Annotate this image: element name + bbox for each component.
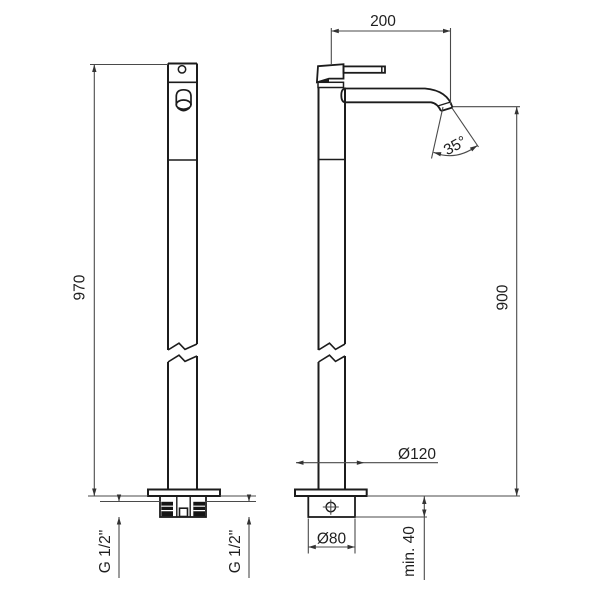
dim-970-label: 970 bbox=[72, 274, 89, 300]
dim-35deg: 35° bbox=[432, 107, 479, 159]
front-base-plate bbox=[295, 490, 367, 497]
dim-970: 970 bbox=[72, 65, 169, 497]
dim-g12-right-label: G 1/2" bbox=[227, 530, 244, 573]
dim-200-label: 200 bbox=[370, 13, 396, 30]
side-base-plate bbox=[148, 490, 220, 497]
cartridge-cap bbox=[317, 64, 344, 82]
threaded-stud-left bbox=[161, 502, 173, 517]
dim-900: 900 bbox=[368, 107, 520, 496]
faucet-drawing: 970 G 1/2" G 1/2" 200 bbox=[0, 0, 600, 600]
dim-o120: Ø120 bbox=[296, 446, 438, 465]
break-line bbox=[319, 355, 346, 362]
technical-drawing-page: 970 G 1/2" G 1/2" 200 bbox=[0, 0, 600, 600]
dim-o80: Ø80 bbox=[308, 519, 355, 554]
dim-900-label: 900 bbox=[495, 284, 512, 310]
neck-ring bbox=[318, 82, 344, 87]
dim-g12-left: G 1/2" bbox=[97, 495, 121, 579]
spout-outlet-rim bbox=[439, 102, 450, 106]
break-line bbox=[168, 355, 197, 362]
lever-handle bbox=[344, 66, 386, 72]
break-line bbox=[168, 343, 197, 350]
break-line bbox=[319, 343, 346, 350]
dim-g12-left-label: G 1/2" bbox=[97, 530, 114, 573]
side-view bbox=[148, 64, 220, 518]
cap-screw bbox=[178, 66, 185, 73]
dim-o80-label: Ø80 bbox=[317, 531, 347, 548]
block-center-port bbox=[180, 508, 188, 516]
dim-min40-label: min. 40 bbox=[401, 526, 418, 577]
dim-g12-right: G 1/2" bbox=[227, 495, 251, 579]
dim-min40: min. 40 bbox=[355, 496, 427, 580]
lever-end-body bbox=[176, 90, 191, 105]
dim-200: 200 bbox=[331, 13, 450, 105]
inlet-crosshair bbox=[323, 500, 339, 515]
dim-o120-label: Ø120 bbox=[398, 446, 436, 463]
spout-bottom-line bbox=[345, 102, 441, 111]
threaded-stud-right bbox=[193, 502, 205, 517]
